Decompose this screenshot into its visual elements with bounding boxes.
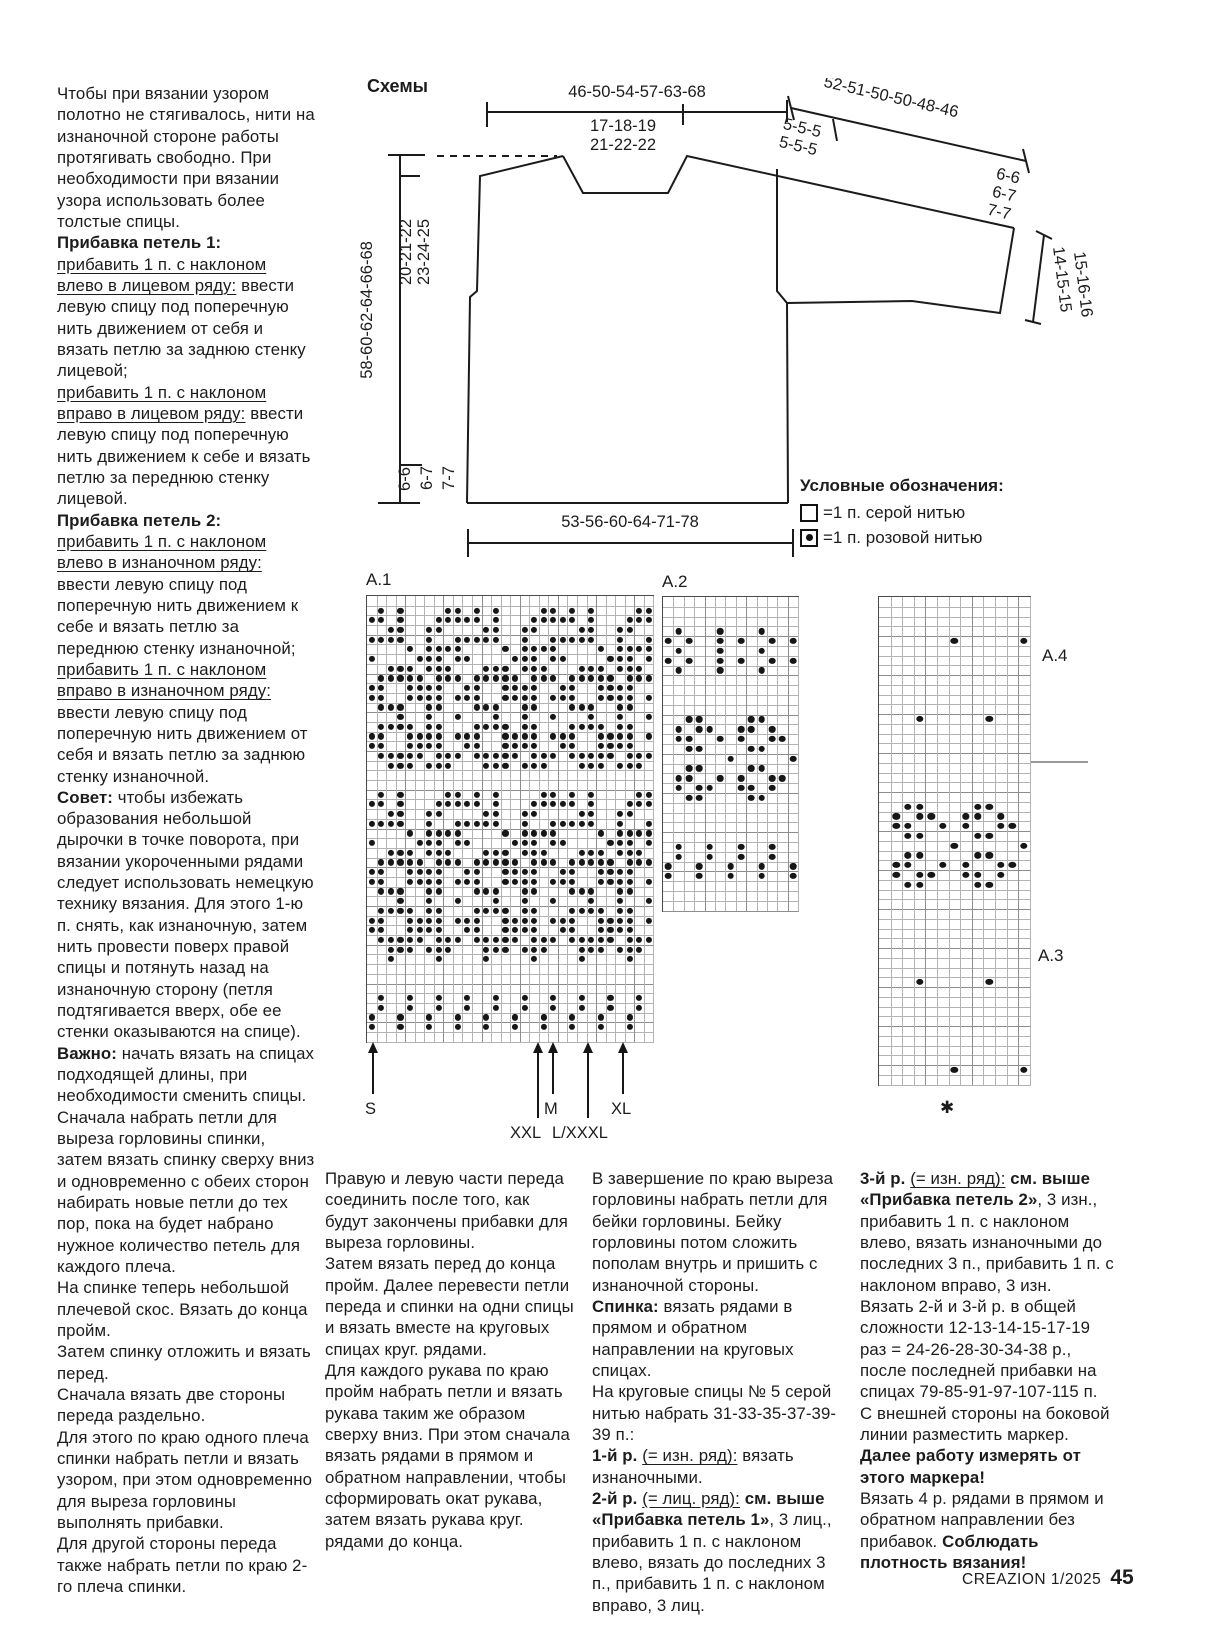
paragraph: Прибавка петель 1: [57,232,315,253]
size-arrow-s [372,1052,374,1094]
chart-a2-label: A.2 [662,572,688,592]
measurement-hem-rows-3: 7-7 [440,466,458,490]
size-arrow-xl [622,1052,624,1094]
measurement-hem-rows-2: 6-7 [418,466,436,490]
size-label-m: M [544,1100,558,1119]
paragraph: Для этого по краю одного плеча спинки на… [57,1427,315,1534]
paragraph: прибавить 1 п. с наклоном влево в лицево… [57,254,315,382]
measurement-neck-width-1: 17-18-19 [590,117,656,135]
measurement-hem-rows-1: 6-6 [396,467,414,491]
measurement-bottom-width: 53-56-60-64-71-78 [561,513,699,531]
paragraph: прибавить 1 п. с наклоном вправо в изнан… [57,659,315,787]
size-arrow-lxxxl [587,1052,589,1118]
bottom-text-column-3: 3-й р. (= изн. ряд): см. выше «Прибавка … [860,1168,1114,1573]
white-square-icon [800,504,818,522]
paragraph: Вязать 2-й и 3-й р. в общей сложности 12… [860,1296,1114,1403]
paragraph: Чтобы при вязании узором полотно не стяг… [57,83,315,232]
paragraph: Сначала набрать петли для выреза горлови… [57,1107,315,1278]
paragraph: В завершение по краю выреза горловины на… [592,1168,844,1296]
chart-footnote-asterisk: ✱ [940,1098,954,1118]
measurement-sleeve-top: 52-51-50-50-48-46 [822,78,960,121]
paragraph: Совет: чтобы избежать образования неболь… [57,787,315,1043]
paragraph: Спинка: вязать рядами в прямом и обратно… [592,1296,844,1381]
measurement-top-width: 46-50-54-57-63-68 [568,83,706,101]
size-label-xxl: XXL [510,1124,541,1143]
measurement-yoke-depth-1: 20-21-22 [397,219,415,285]
measurement-sleeve-rows-3: 7-7 [985,201,1012,224]
knitting-chart-a1 [366,595,654,1043]
measurement-side-length: 58-60-62-64-66-68 [358,241,376,379]
page-footer: CREAZION 1/2025 45 [962,1566,1134,1590]
paragraph: Сначала вязать две стороны переда раздел… [57,1384,315,1427]
paragraph: Правую и левую части переда соединить по… [325,1168,577,1253]
chart-cell [644,1032,655,1043]
garment-outline [437,156,1014,503]
paragraph: 2-й р. (= лиц. ряд): см. выше «Прибавка … [592,1488,844,1616]
paragraph: Прибавка петель 2: [57,510,315,531]
paragraph: Затем спинку отложить и вязать перед. [57,1341,315,1384]
size-arrow-xxl [537,1052,539,1118]
paragraph: Затем вязать перед до конца пройм. Далее… [325,1253,577,1360]
chart-a1-label: A.1 [366,570,392,590]
legend: Условные обозначения: =1 п. серой нитью … [800,476,1004,550]
magazine-name: CREAZION 1/2025 [962,1571,1101,1589]
knitting-chart-a3-a4 [878,596,1031,1086]
legend-title: Условные обозначения: [800,476,1004,496]
legend-item-grey: =1 п. серой нитью [800,500,1004,525]
measurement-yoke-depth-2: 23-24-25 [415,219,433,285]
paragraph: На круговые спицы № 5 серой нитью набрат… [592,1381,844,1445]
chart-a4-label: A.4 [1042,646,1068,666]
chart-a3-label: A.3 [1038,946,1064,966]
paragraph: 3-й р. (= изн. ряд): см. выше «Прибавка … [860,1168,1114,1296]
paragraph: Важно: начать вязать на спицах подходяще… [57,1043,315,1107]
chart-cell [1018,1075,1031,1086]
magazine-page: Чтобы при вязании узором полотно не стяг… [0,0,1211,1636]
legend-item-label: =1 п. розовой нитью [823,528,982,548]
knitting-chart-a2 [662,596,799,912]
size-label-s: S [365,1100,376,1119]
bottom-text-column-1: Правую и левую части переда соединить по… [325,1168,577,1552]
paragraph: На спинке теперь небольшой плечевой скос… [57,1277,315,1341]
size-label-lxxxl: L/XXXL [552,1124,608,1143]
paragraph: прибавить 1 п. с наклоном влево в изнано… [57,531,315,659]
paragraph: 1-й р. (= изн. ряд): вязать изнаночными. [592,1445,844,1488]
paragraph: Для другой стороны переда также набрать … [57,1533,315,1597]
legend-item-pink: =1 п. розовой нитью [800,525,1004,550]
size-label-xl: XL [611,1100,631,1119]
measurement-neck-width-2: 21-22-22 [590,136,656,154]
paragraph: прибавить 1 п. с наклоном вправо в лицев… [57,382,315,510]
chart-cell [788,901,799,912]
a4-a3-divider-line [1031,761,1088,763]
square-with-dot-icon [800,529,818,547]
size-arrow-m [552,1052,554,1094]
paragraph: С внешней стороны на боковой линии разме… [860,1403,1114,1488]
bottom-text-column-2: В завершение по краю выреза горловины на… [592,1168,844,1616]
paragraph: Для каждого рукава по краю пройм набрать… [325,1360,577,1552]
paragraph: Вязать 4 р. рядами в прямом и обратном н… [860,1488,1114,1573]
legend-item-label: =1 п. серой нитью [823,503,965,523]
page-number: 45 [1110,1566,1133,1590]
left-text-column: Чтобы при вязании узором полотно не стяг… [57,83,315,1597]
